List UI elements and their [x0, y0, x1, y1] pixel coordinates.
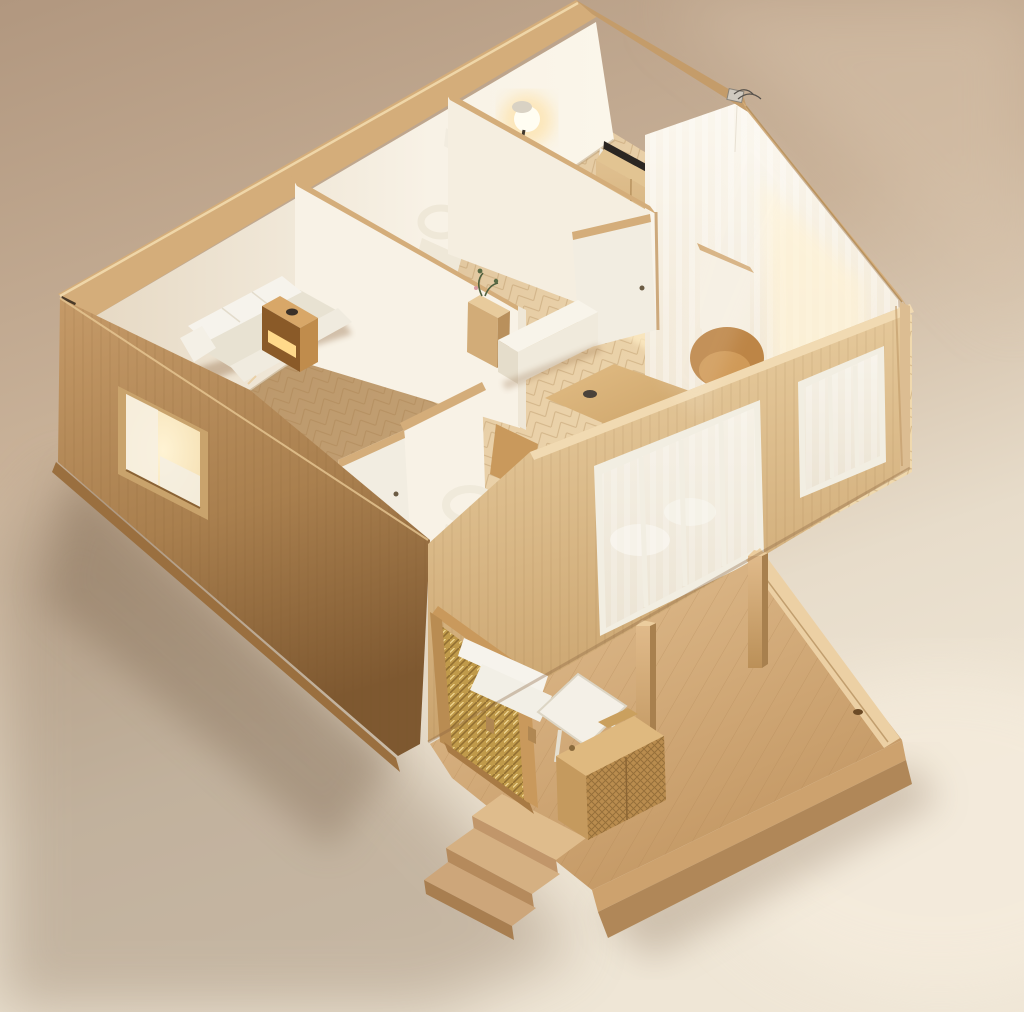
bedroom2-door-handle	[394, 492, 399, 497]
deck-rim-notch	[853, 709, 863, 715]
post-1-front	[748, 556, 762, 668]
window-a-mullion-3	[721, 422, 724, 566]
render-stage: High-angle aerial view of a miniature do…	[0, 0, 1024, 1012]
window-b-mullion-1	[830, 377, 832, 478]
window-b-mullion-2	[855, 366, 857, 467]
tableware	[583, 390, 597, 398]
plant-leaf-2	[494, 279, 498, 283]
nightstand-object	[286, 309, 298, 316]
console-object	[569, 745, 575, 751]
plant-flower	[474, 286, 478, 290]
living-door-handle	[640, 286, 645, 291]
lamp-shade	[512, 101, 532, 113]
console-split	[626, 757, 627, 820]
post-1-side	[762, 553, 768, 668]
door-frame-post	[656, 212, 658, 330]
plant-leaf-1	[478, 269, 483, 274]
house-model-render	[0, 0, 1024, 1012]
cable-fixture	[727, 89, 744, 103]
